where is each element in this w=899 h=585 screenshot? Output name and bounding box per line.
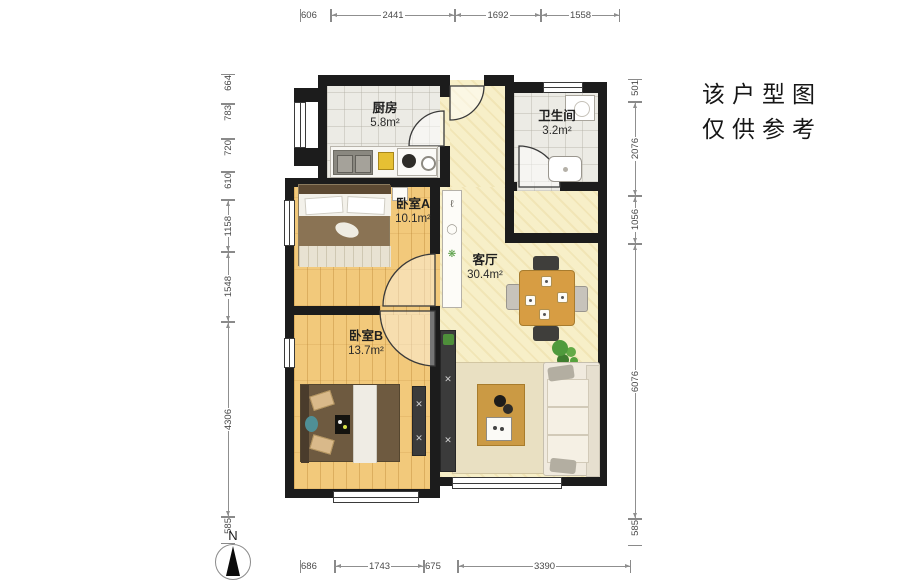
room-area: 5.8m² (348, 116, 422, 131)
bathroom-label: 卫生间 3.2m² (520, 108, 594, 139)
kitchen-sink (333, 150, 373, 175)
pillow (309, 434, 334, 454)
living-room-label: 客厅 30.4m² (448, 252, 522, 283)
dimension-row-bottom: 686 1743 675 3390 (300, 560, 631, 573)
tray-icon (486, 417, 512, 441)
dimension-row-top: 606 2441 1692 1558 (300, 9, 620, 22)
disclaimer-note: 该户型图 仅供参考 (702, 78, 822, 147)
dimension-segment: 3390 (458, 560, 631, 573)
living-window (452, 477, 562, 489)
dimension-value: 1548 (223, 276, 234, 297)
coffee-table (477, 384, 525, 446)
bed-a-headboard (299, 185, 391, 194)
wall-kitchen-right-upper (440, 75, 450, 97)
dimension-value: 606 (301, 10, 317, 21)
basin-drain-icon (563, 167, 568, 172)
dimension-segment: 675 (424, 560, 458, 573)
round-pillow (305, 416, 318, 432)
wall-bedrooma-right-corner (430, 306, 440, 315)
wall-bathroom-left (505, 82, 514, 191)
plate-icon (539, 309, 550, 320)
plate-icon (557, 292, 568, 303)
dimension-segment: 585 (628, 519, 642, 546)
wall-bathroom-bottom-right (560, 182, 607, 191)
sink-basin-right (355, 155, 371, 173)
dimension-segment: 4306 (221, 322, 235, 517)
dimension-segment: 1056 (628, 196, 642, 244)
tv-cabinet-living: ✕ ✕ (440, 330, 456, 472)
bowl-icon (503, 404, 513, 414)
entry-floor (450, 80, 505, 187)
dimension-value: 2076 (630, 138, 641, 159)
cabinet-x-icon: ✕ (444, 374, 452, 385)
dining-chair-bottom (533, 326, 559, 341)
wall-niche-stub (505, 233, 598, 243)
cabinet-x-icon: ✕ (444, 435, 452, 446)
dimension-value: 2441 (382, 10, 403, 21)
dimension-segment: 720 (221, 139, 235, 172)
bed-b-runner (353, 385, 377, 463)
room-area: 3.2m² (520, 124, 594, 139)
dimension-value: 1743 (369, 561, 390, 572)
bedroom-b-label: 卧室B 13.7m² (329, 328, 403, 359)
wall-bathroom-bottom-left (505, 182, 517, 191)
wall-bedroomb-right (430, 315, 440, 498)
sofa (543, 362, 600, 476)
room-area: 10.1m² (376, 212, 450, 227)
throw-pillow (549, 458, 576, 475)
bathroom-window (543, 82, 583, 93)
wall-top-kitchen (318, 75, 450, 86)
dimension-segment: 1743 (335, 560, 424, 573)
dimension-value: 1558 (570, 10, 591, 21)
dimension-value: 6076 (630, 371, 641, 392)
north-label: N (210, 528, 256, 543)
compass: N (210, 528, 256, 580)
pillow (309, 390, 335, 411)
dining-chair-right (573, 286, 588, 312)
dimension-value: 720 (223, 140, 234, 156)
dimension-segment: 610 (221, 172, 235, 200)
dimension-value: 675 (425, 561, 441, 572)
bed-a-foot-blanket (299, 246, 391, 267)
wall-bay-cap-bottom (294, 148, 320, 166)
dimension-value: 585 (630, 520, 641, 536)
dimension-value: 664 (223, 75, 234, 91)
kitchen-doorway (440, 97, 450, 146)
sofa-cushion (547, 379, 589, 407)
bedroom-b-window (333, 491, 419, 503)
tv-panel-bedroom-b: ✕ ✕ (412, 386, 426, 456)
wall-bay-cap-top (294, 88, 320, 102)
dining-chair-top (533, 256, 559, 271)
plate-icon (525, 295, 536, 306)
dimension-segment: 2441 (331, 9, 455, 22)
dimension-segment: 1158 (221, 200, 235, 252)
tray-dot-icon (493, 426, 497, 430)
dimension-value: 1158 (223, 216, 234, 236)
dimension-value: 1692 (487, 10, 508, 21)
floorplan-canvas: ℓ ◯ ❋ ✕ ✕ ✕ (0, 0, 899, 585)
dimension-column-left: 664 783 720 610 1158 1548 4306 585 (221, 74, 235, 544)
room-name: 厨房 (348, 100, 422, 116)
room-area: 30.4m² (448, 268, 522, 283)
disclaimer-line-1: 该户型图 (702, 78, 822, 113)
room-area: 13.7m² (329, 344, 403, 359)
tray-dot-icon (500, 427, 504, 431)
wall-bedrooma-bedroomb (285, 306, 380, 315)
compass-needle-icon (226, 546, 240, 576)
stove-burner-icon (402, 154, 416, 168)
room-name: 卧室B (329, 328, 403, 344)
compass-ring (215, 544, 251, 580)
dimension-segment: 6076 (628, 244, 642, 519)
dimension-segment: 1548 (221, 252, 235, 322)
dimension-value: 501 (630, 80, 641, 96)
dimension-segment: 501 (628, 79, 642, 102)
room-name: 客厅 (448, 252, 522, 268)
dimension-value: 3390 (534, 561, 555, 572)
dimension-segment: 783 (221, 104, 235, 139)
wall-left-bedrooma (285, 178, 294, 315)
kitchen-stove (397, 148, 437, 176)
pillow (304, 196, 343, 216)
dimension-value: 686 (301, 561, 317, 572)
disclaimer-line-2: 仅供参考 (702, 113, 822, 148)
dimension-segment: 1692 (455, 9, 541, 22)
plate-icon (541, 276, 552, 287)
dining-table (519, 270, 575, 326)
bathroom-basin (548, 156, 582, 182)
dimension-segment: 2076 (628, 102, 642, 196)
dimension-value: 610 (223, 173, 234, 189)
dimension-column-right: 501 2076 1056 6076 585 (628, 79, 642, 546)
sofa-cushion (547, 407, 589, 435)
cabinet-x-icon: ✕ (415, 399, 423, 410)
kitchen-mat (378, 152, 394, 170)
cabinet-x-icon: ✕ (415, 433, 423, 444)
dimension-value: 1056 (630, 209, 641, 230)
sink-basin-left (337, 155, 353, 173)
tray-dot-icon (338, 420, 342, 424)
bedroom-b-left-window (284, 338, 295, 368)
kitchen-bay-window (294, 102, 306, 148)
bedroom-a-window (284, 200, 295, 246)
kitchen-label: 厨房 5.8m² (348, 100, 422, 131)
bed-a-accent-pillow (333, 220, 360, 241)
dimension-segment: 606 (300, 9, 331, 22)
stove-dial-icon (421, 156, 436, 171)
dimension-segment: 1558 (541, 9, 620, 22)
plant-small-icon (443, 334, 454, 345)
dimension-segment: 686 (300, 560, 335, 573)
bedroom-a-doorway (430, 254, 440, 306)
bedroom-a-label: 卧室A 10.1m² (376, 196, 450, 227)
tray-dot-icon (343, 425, 347, 429)
room-name: 卫生间 (520, 108, 594, 124)
bedroom-b-doorway (380, 306, 430, 315)
dimension-value: 783 (223, 105, 234, 121)
bed-b (300, 384, 400, 462)
bed-b-tray (335, 415, 350, 434)
dimension-value: 4306 (223, 409, 234, 430)
plant-icon (552, 340, 568, 356)
dimension-segment: 664 (221, 74, 235, 104)
bathroom-doorway (517, 182, 560, 191)
room-name: 卧室A (376, 196, 450, 212)
